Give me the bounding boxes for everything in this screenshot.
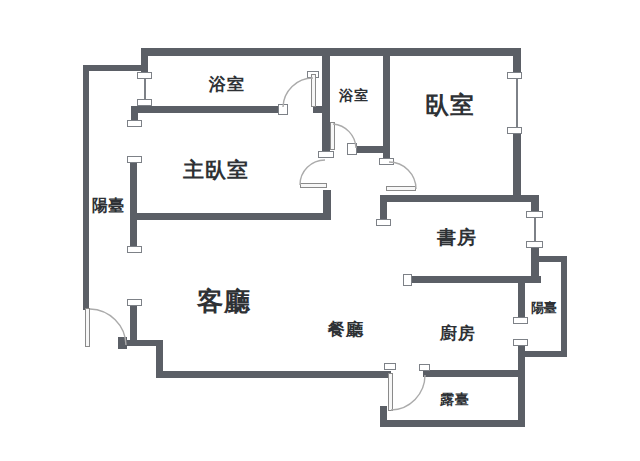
wall-bedroom-east-lower bbox=[513, 132, 521, 202]
room-label-balcony-right: 陽臺 bbox=[531, 301, 557, 314]
wall-bath2-bottom bbox=[352, 146, 390, 153]
door-arc-bedroom bbox=[389, 162, 416, 189]
door-arc-terrace bbox=[391, 375, 425, 410]
room-label-bedroom: 臥室 bbox=[425, 93, 475, 117]
opening-cap bbox=[513, 317, 528, 324]
wall-bedroom-south bbox=[380, 195, 539, 202]
door-leaf-bathroom-top bbox=[311, 74, 316, 107]
opening-cap bbox=[127, 246, 142, 253]
wall-balcony-right-west-upper bbox=[518, 281, 525, 319]
wall-balcony-right-bottom bbox=[518, 351, 567, 357]
wall-balcony-right-east bbox=[561, 256, 567, 357]
door-leaf-bedroom bbox=[386, 186, 416, 191]
door-leaf-master-bedroom bbox=[300, 183, 327, 188]
wall-bath1-west-upper bbox=[141, 48, 148, 74]
wall-terrace-bottom bbox=[380, 420, 525, 427]
wall-terrace-west-stub bbox=[380, 406, 387, 427]
door-leaf-bathroom-mid bbox=[330, 122, 335, 150]
wall-bedroom-east-upper bbox=[513, 48, 521, 74]
window-cap bbox=[137, 99, 152, 106]
opening-cap bbox=[379, 158, 394, 165]
room-label-kitchen: 廚房 bbox=[440, 325, 476, 342]
window-bedroom-east bbox=[516, 79, 518, 128]
window-cap bbox=[137, 72, 152, 79]
window-cap bbox=[507, 72, 522, 79]
door-arc-bathroom-top bbox=[283, 78, 313, 107]
opening-cap bbox=[403, 274, 412, 286]
window-study-east bbox=[534, 218, 536, 242]
door-arc-master-bedroom bbox=[300, 160, 325, 185]
door-leaf-terrace bbox=[388, 373, 393, 411]
wall-west-inner-lower bbox=[130, 305, 137, 346]
wall-top bbox=[141, 48, 521, 56]
wall-living-bottom bbox=[156, 371, 391, 378]
room-label-study: 書房 bbox=[437, 228, 477, 247]
wall-west-inner-upper bbox=[130, 163, 137, 249]
wall-bath1-bottom bbox=[131, 106, 285, 113]
wall-kitchen-bottom bbox=[423, 370, 525, 377]
opening-cap bbox=[318, 151, 334, 158]
window-cap bbox=[526, 241, 543, 248]
wall-east-long-vertical bbox=[518, 345, 525, 427]
opening-cap bbox=[127, 120, 142, 127]
room-label-bathroom-top: 浴室 bbox=[209, 76, 245, 93]
window-bath1-west bbox=[144, 79, 146, 100]
room-label-balcony-left: 陽臺 bbox=[92, 198, 124, 214]
room-label-master-bedroom: 主臥室 bbox=[183, 160, 249, 181]
opening-cap bbox=[127, 299, 142, 306]
opening-cap bbox=[513, 339, 528, 346]
room-label-dining-room: 餐廳 bbox=[328, 321, 364, 338]
wall-left-outer bbox=[83, 65, 89, 310]
opening-cap bbox=[384, 363, 396, 370]
wall-bath2-east bbox=[383, 48, 390, 160]
window-cap bbox=[507, 127, 522, 134]
opening-cap bbox=[376, 219, 391, 226]
wall-balcony-left-top bbox=[83, 65, 145, 71]
window-cap bbox=[526, 211, 543, 218]
opening-cap bbox=[347, 143, 357, 155]
opening-cap bbox=[419, 364, 430, 371]
wall-front-door-jamb bbox=[118, 337, 127, 349]
room-label-terrace: 露臺 bbox=[440, 392, 470, 406]
floorplan-canvas: 浴室 浴室 臥室 主臥室 陽臺 書房 客廳 餐廳 廚房 陽臺 露臺 bbox=[0, 0, 640, 461]
room-label-living-room: 客廳 bbox=[197, 288, 251, 314]
wall-master-bottom bbox=[131, 213, 331, 220]
opening-cap bbox=[278, 104, 288, 115]
door-leaf-front bbox=[85, 308, 90, 347]
opening-cap bbox=[127, 156, 142, 163]
wall-bathrooms-shared bbox=[322, 48, 330, 153]
room-label-bathroom-mid: 浴室 bbox=[339, 88, 369, 102]
